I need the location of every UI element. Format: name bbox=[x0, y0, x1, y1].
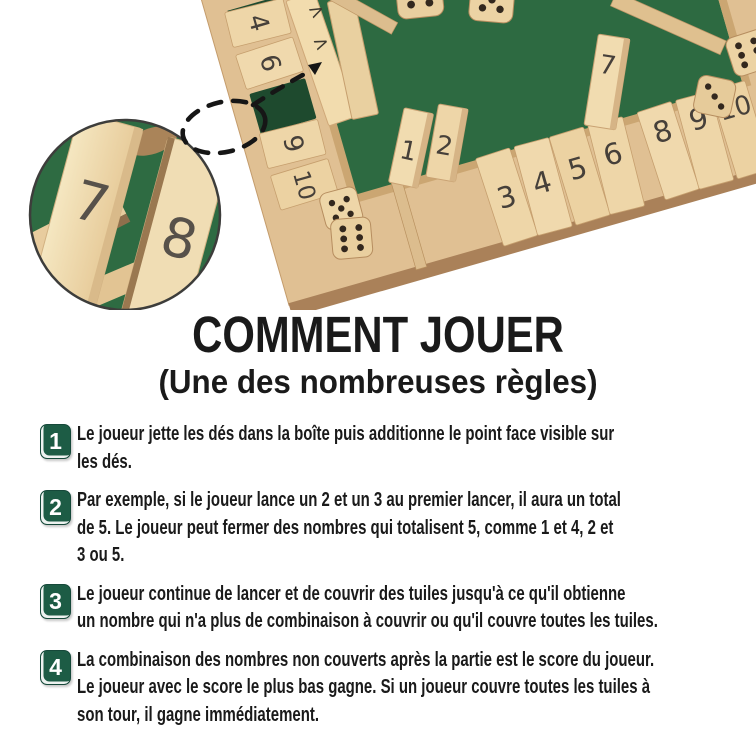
step-line: Le joueur continue de lancer et de couvr… bbox=[77, 580, 658, 608]
die bbox=[330, 217, 373, 260]
magnifier-inset: 7 8 bbox=[4, 112, 230, 310]
page-subtitle: (Une des nombreuses règles) bbox=[19, 360, 737, 404]
instruction-step-1: 1 Le joueur jette les dés dans la boîte … bbox=[40, 420, 740, 475]
die bbox=[692, 74, 737, 119]
product-photo: 4 6 9 10 3 4 5 6 8 9 10 bbox=[0, 0, 756, 310]
step-number-badge: 4 bbox=[40, 650, 71, 685]
step-line: Par exemple, si le joueur lance un 2 et … bbox=[77, 486, 621, 514]
step-text: Le joueur jette les dés dans la boîte pu… bbox=[77, 420, 614, 475]
step-line: Le joueur jette les dés dans la boîte pu… bbox=[77, 420, 614, 448]
instruction-step-2: 2 Par exemple, si le joueur lance un 2 e… bbox=[40, 486, 740, 569]
step-line: son tour, il gagne immédiatement. bbox=[77, 701, 654, 729]
step-line: un nombre qui n'a plus de combinaison à … bbox=[77, 607, 658, 635]
step-line: 3 ou 5. bbox=[77, 541, 621, 569]
instruction-step-4: 4 La combinaison des nombres non couvert… bbox=[40, 646, 740, 729]
die bbox=[468, 0, 516, 24]
instruction-step-3: 3 Le joueur continue de lancer et de cou… bbox=[40, 580, 740, 635]
step-line: de 5. Le joueur peut fermer des nombres … bbox=[77, 514, 621, 542]
step-number-badge: 1 bbox=[40, 424, 71, 459]
step-number-badge: 3 bbox=[40, 584, 71, 619]
step-line: les dés. bbox=[77, 448, 614, 476]
step-line: La combinaison des nombres non couverts … bbox=[77, 646, 654, 674]
step-text: La combinaison des nombres non couverts … bbox=[77, 646, 654, 729]
page-title: COMMENT JOUER bbox=[68, 310, 688, 360]
instructions-list: 1 Le joueur jette les dés dans la boîte … bbox=[40, 420, 740, 728]
step-text: Par exemple, si le joueur lance un 2 et … bbox=[77, 486, 621, 569]
step-line: Le joueur avec le score le plus bas gagn… bbox=[77, 673, 654, 701]
step-text: Le joueur continue de lancer et de couvr… bbox=[77, 580, 658, 635]
step-number-badge: 2 bbox=[40, 490, 71, 525]
